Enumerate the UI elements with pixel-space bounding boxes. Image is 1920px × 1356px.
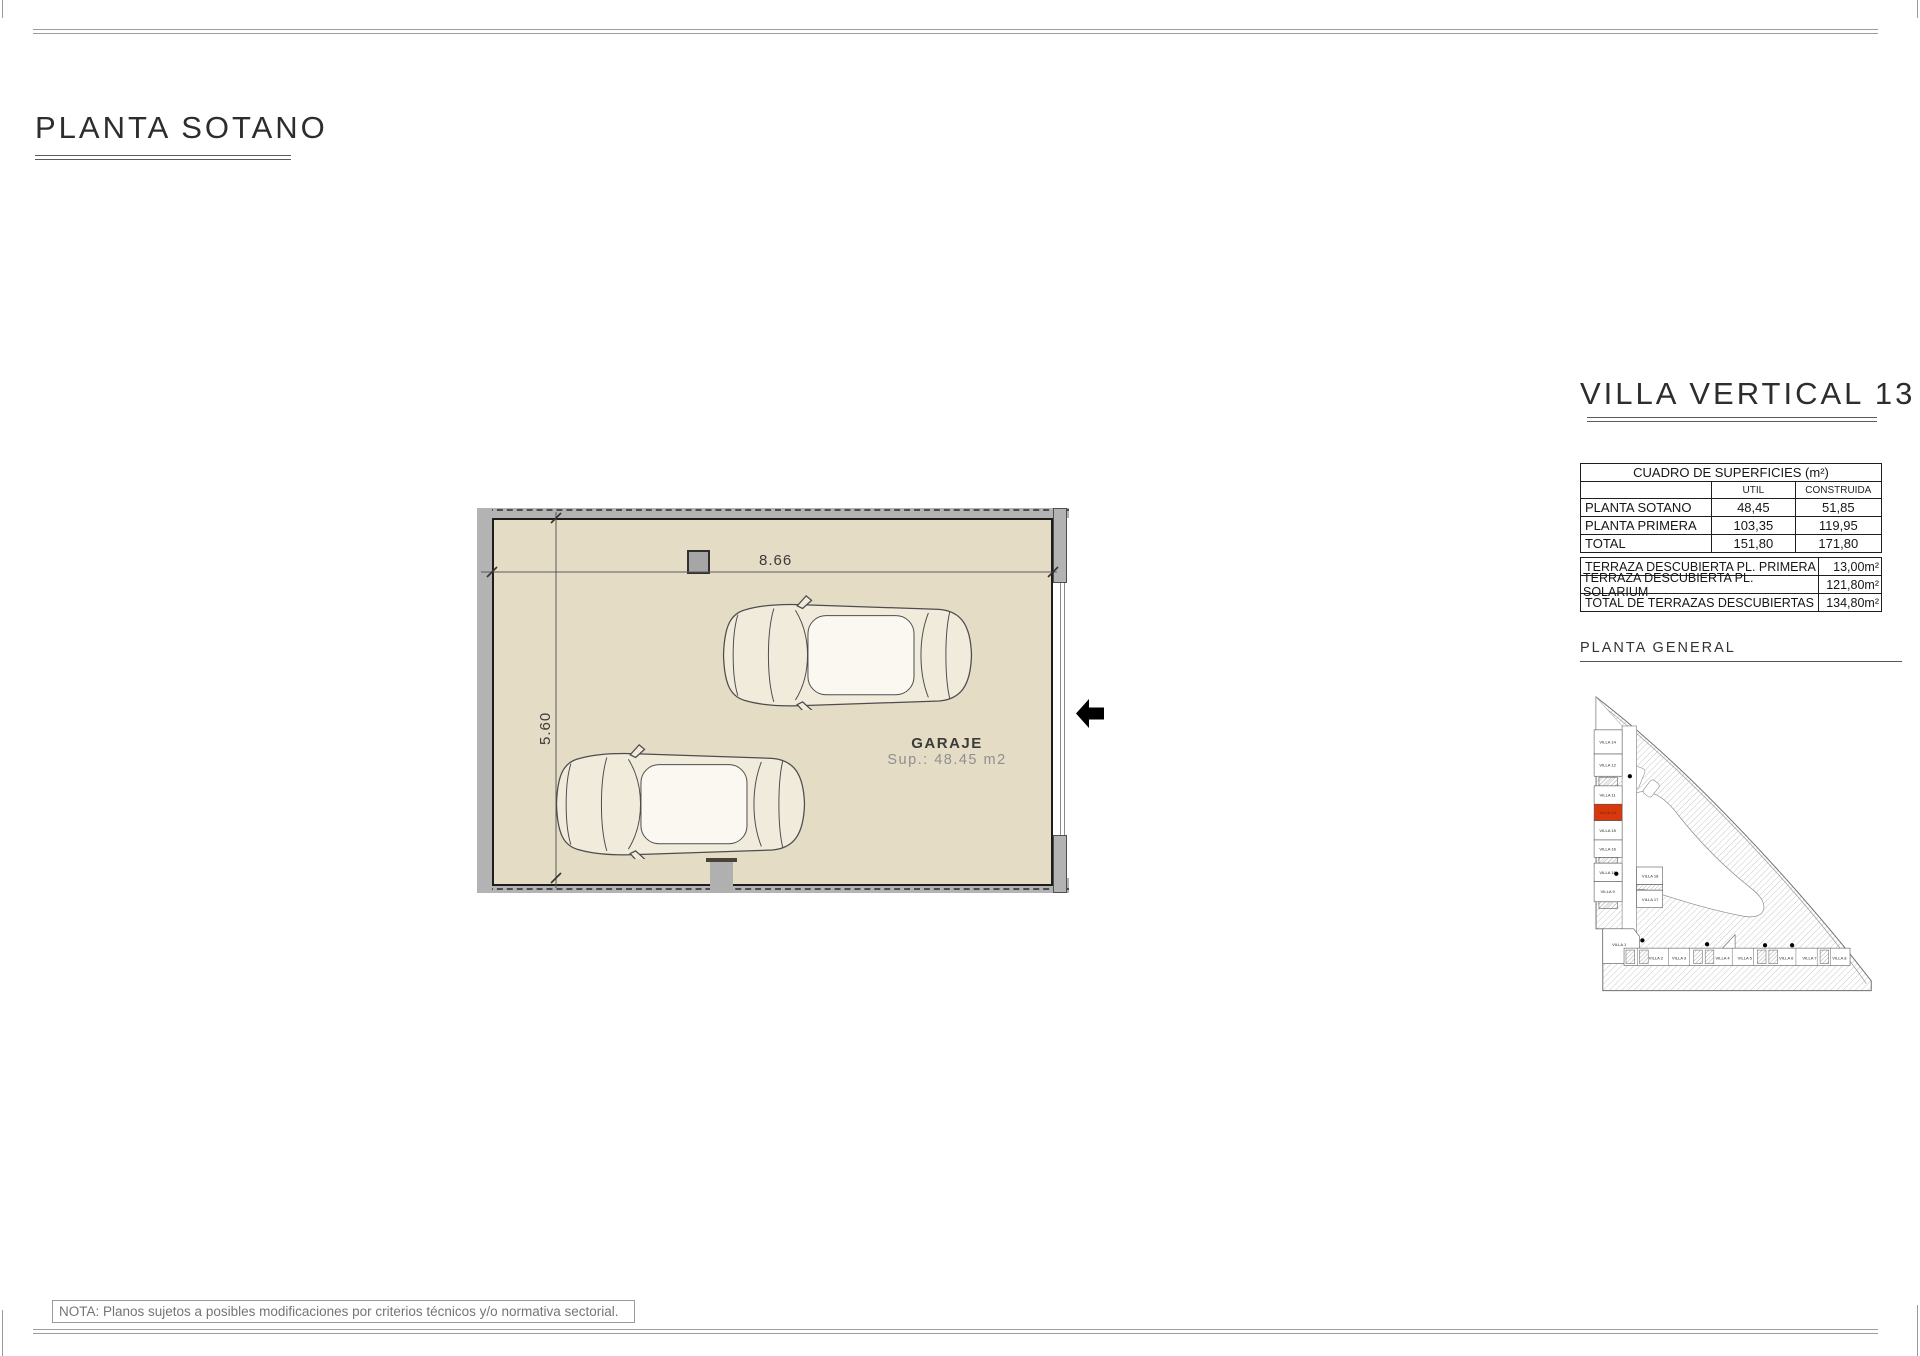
note-box: NOTA: Planos sujetos a posibles modifica… bbox=[52, 1300, 635, 1323]
car-top-view-1 bbox=[705, 586, 990, 710]
villa-label: VILLA 5 bbox=[1738, 956, 1753, 961]
row-label: PLANTA PRIMERA bbox=[1581, 517, 1712, 534]
surfaces-col-util: UTIL bbox=[1712, 482, 1795, 498]
garage-floor-plan: 8.66 5.60 bbox=[477, 508, 1069, 893]
terraces-table: TERRAZA DESCUBIERTA PL. PRIMERA 13,00m² … bbox=[1580, 557, 1882, 612]
villa-label: VILLA 9 bbox=[1601, 889, 1616, 894]
row-construida: 171,80 bbox=[1796, 535, 1881, 552]
terrace-label: TOTAL DE TERRAZAS DESCUBIERTAS bbox=[1581, 594, 1819, 611]
page-title: PLANTA SOTANO bbox=[35, 110, 328, 146]
villa-label: VILLA 4 bbox=[1715, 956, 1730, 961]
site-plan-rule bbox=[1580, 661, 1902, 662]
villa-label-highlighted: VILLA 13 bbox=[1599, 810, 1616, 815]
villa-label: VILLA 6 bbox=[1779, 956, 1794, 961]
villa-label: VILLA 2 bbox=[1649, 956, 1664, 961]
row-construida: 51,85 bbox=[1796, 499, 1881, 516]
villa-label: VILLA 16 bbox=[1599, 847, 1616, 852]
entrance-arrow-icon bbox=[1076, 698, 1104, 729]
dim-height-label: 5.60 bbox=[537, 690, 554, 745]
frame-tick-top-left bbox=[2, 0, 3, 18]
villa-label: VILLA 12 bbox=[1599, 763, 1616, 768]
page-title-underline bbox=[35, 155, 291, 160]
row-label: PLANTA SOTANO bbox=[1581, 499, 1712, 516]
villa-label: VILLA 14 bbox=[1599, 739, 1616, 744]
surfaces-col-blank bbox=[1581, 482, 1712, 498]
dim-width-label: 8.66 bbox=[759, 552, 792, 569]
bottom-rule bbox=[33, 1329, 1878, 1334]
table-row: TERRAZA DESCUBIERTA PL. SOLARIUM 121,80m… bbox=[1581, 575, 1881, 593]
frame-tick-bottom-right bbox=[1917, 1305, 1918, 1356]
plan-sheet: { "page": { "title": "PLANTA SOTANO", "n… bbox=[0, 0, 1920, 1356]
row-label: TOTAL bbox=[1581, 535, 1712, 552]
note-text: NOTA: Planos sujetos a posibles modifica… bbox=[59, 1304, 619, 1319]
car-top-view-2 bbox=[538, 735, 823, 859]
terrace-value: 121,80m² bbox=[1819, 576, 1881, 593]
villa-label: VILLA 17 bbox=[1642, 897, 1659, 902]
villa-label: VILLA 3 bbox=[1672, 956, 1687, 961]
site-plan-map: VILLA 14 VILLA 12 VILLA 11 VILLA 13 VILL… bbox=[1586, 670, 1890, 1008]
villa-title: VILLA VERTICAL 13 bbox=[1580, 376, 1880, 412]
villa-label: VILLA 10 bbox=[1599, 870, 1616, 875]
surfaces-table-header: CUADRO DE SUPERFICIES (m²) bbox=[1581, 464, 1881, 481]
villa-label: VILLA 18 bbox=[1642, 874, 1659, 879]
villa-title-underline bbox=[1587, 417, 1877, 422]
room-area-label: Sup.: 48.45 m2 bbox=[847, 752, 1047, 768]
villa-label: VILLA 7 bbox=[1802, 956, 1817, 961]
table-row: PLANTA PRIMERA 103,35 119,95 bbox=[1581, 516, 1881, 534]
room-label: GARAJE bbox=[847, 735, 1047, 752]
surfaces-col-construida: CONSTRUIDA bbox=[1796, 482, 1881, 498]
villa-label: VILLA 8 bbox=[1832, 956, 1847, 961]
terrace-value: 13,00m² bbox=[1819, 558, 1881, 575]
row-construida: 119,95 bbox=[1796, 517, 1881, 534]
terrace-label: TERRAZA DESCUBIERTA PL. SOLARIUM bbox=[1581, 576, 1819, 593]
villa-label: VILLA 15 bbox=[1599, 828, 1616, 833]
row-util: 103,35 bbox=[1712, 517, 1795, 534]
frame-tick-top-right bbox=[1917, 0, 1918, 18]
table-row: TOTAL 151,80 171,80 bbox=[1581, 534, 1881, 552]
villa-label: VILLA 11 bbox=[1600, 793, 1617, 798]
surfaces-table: CUADRO DE SUPERFICIES (m²) UTIL CONSTRUI… bbox=[1580, 463, 1882, 553]
table-row: PLANTA SOTANO 48,45 51,85 bbox=[1581, 498, 1881, 516]
frame-tick-bottom-left bbox=[2, 1310, 3, 1356]
row-util: 151,80 bbox=[1712, 535, 1795, 552]
row-util: 48,45 bbox=[1712, 499, 1795, 516]
table-row: TOTAL DE TERRAZAS DESCUBIERTAS 134,80m² bbox=[1581, 593, 1881, 611]
site-plan-label: PLANTA GENERAL bbox=[1580, 640, 1736, 656]
top-rule bbox=[33, 29, 1878, 34]
villa-label: VILLA 1 bbox=[1612, 942, 1627, 947]
terrace-value: 134,80m² bbox=[1819, 594, 1881, 611]
